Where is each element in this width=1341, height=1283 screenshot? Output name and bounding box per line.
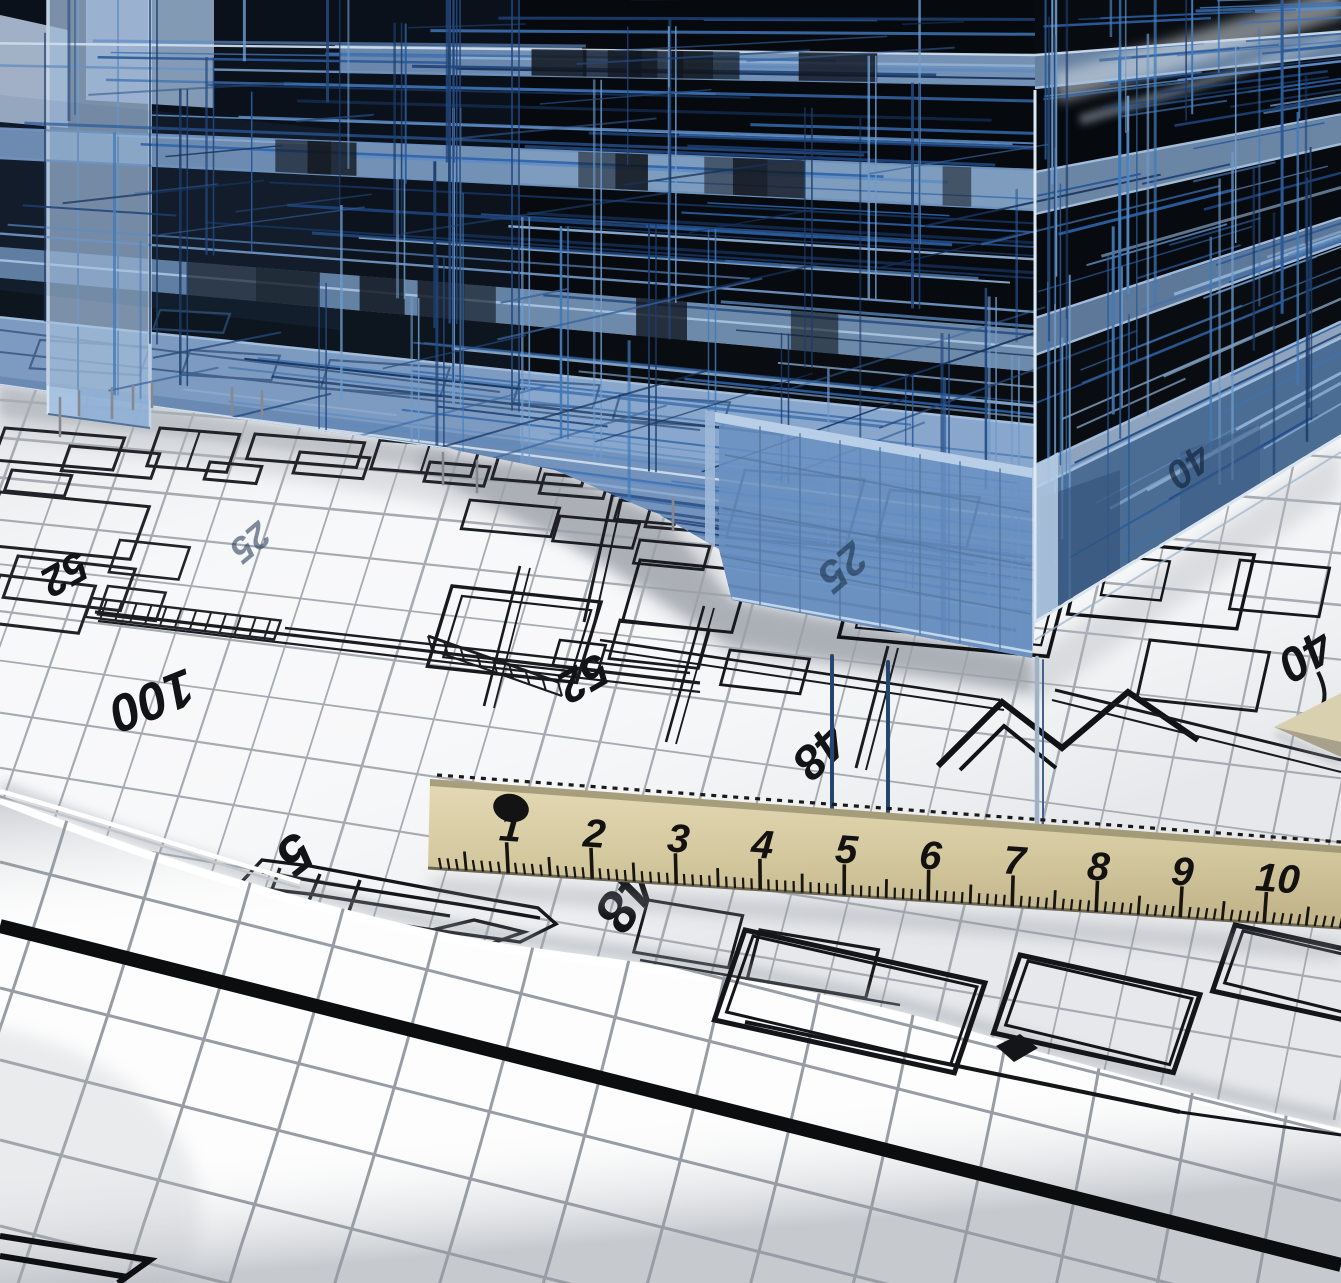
svg-text:10: 10: [1254, 855, 1302, 902]
svg-text:2: 2: [581, 811, 607, 857]
svg-text:4: 4: [749, 822, 775, 868]
svg-text:9: 9: [1170, 849, 1196, 895]
svg-text:5: 5: [834, 827, 860, 873]
svg-text:3: 3: [666, 816, 691, 862]
svg-text:8: 8: [1086, 844, 1112, 890]
svg-text:6: 6: [918, 833, 944, 879]
